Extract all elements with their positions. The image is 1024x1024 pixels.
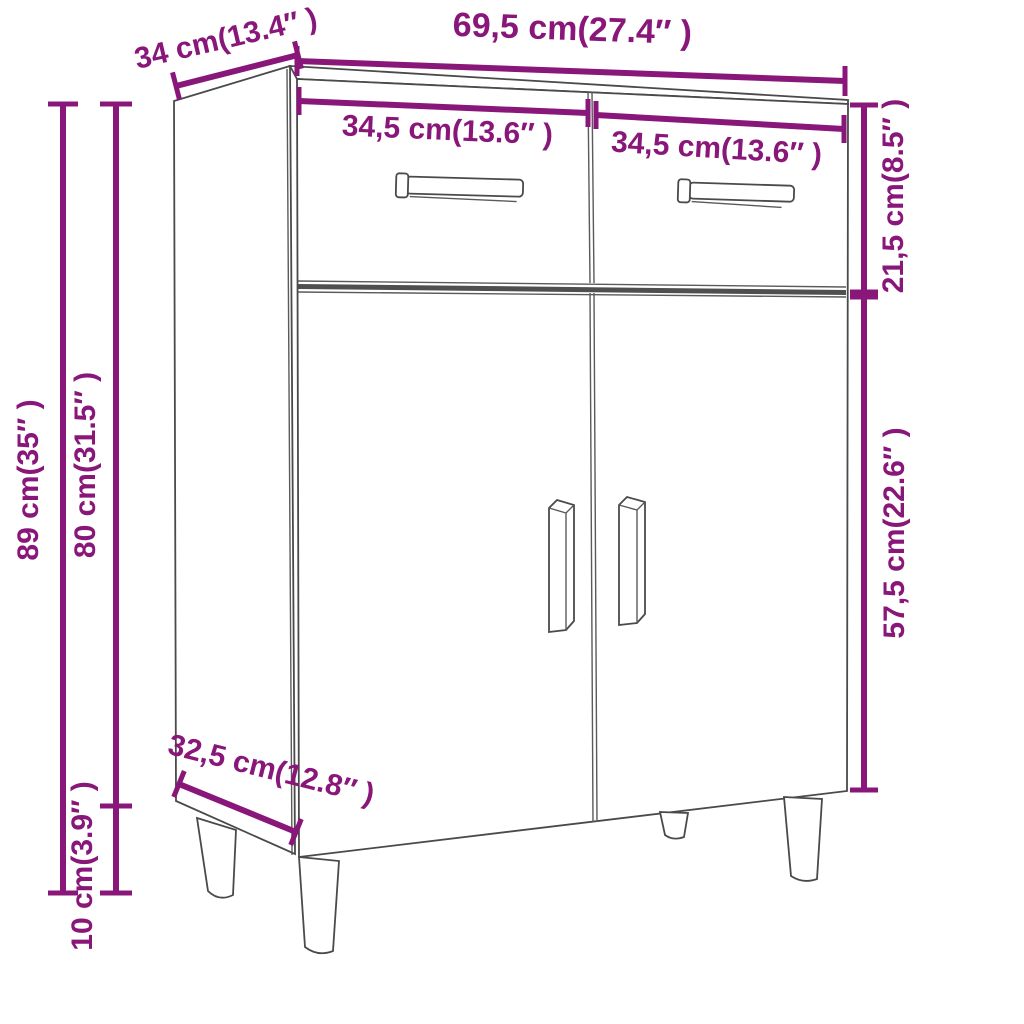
dim-total-height-label: 89 cm(35″ ) bbox=[12, 399, 45, 560]
drawer-handle-right-bar bbox=[689, 183, 794, 202]
leg-back-left bbox=[197, 818, 236, 898]
dim-width-top-label: 69,5 cm(27.4″ ) bbox=[452, 6, 692, 52]
door-handle-left-body bbox=[549, 500, 574, 632]
cabinet-drawing bbox=[174, 66, 848, 953]
drawer-handle-right-cap bbox=[678, 179, 691, 202]
leg-front-left bbox=[299, 857, 339, 953]
dim-body-height: 80 cm(31.5″ ) bbox=[69, 104, 132, 806]
dim-depth-top-label: 34 cm(13.4″ ) bbox=[131, 2, 320, 76]
dim-depth-top-tick-left bbox=[173, 72, 180, 99]
dim-leg-height-label: 10 cm(3.9″ ) bbox=[66, 781, 99, 950]
leg-front-right bbox=[784, 797, 822, 881]
dim-door-section-height: 57,5 cm(22.6″ ) bbox=[850, 297, 911, 790]
dimension-diagram-page: 69,5 cm(27.4″ ) 34 cm(13.4″ ) 34,5 cm(13… bbox=[0, 0, 1024, 1024]
dim-body-height-label: 80 cm(31.5″ ) bbox=[69, 372, 102, 558]
dim-drawer-section-height-label: 21,5 cm(8.5″ ) bbox=[877, 99, 910, 293]
door-handle-right bbox=[619, 497, 645, 625]
door-handle-right-body bbox=[619, 497, 645, 625]
door-handle-left bbox=[549, 500, 574, 632]
leg-back-right bbox=[660, 812, 688, 839]
sideboard-dimension-diagram: 69,5 cm(27.4″ ) 34 cm(13.4″ ) 34,5 cm(13… bbox=[0, 0, 1024, 1024]
dim-door-section-height-label: 57,5 cm(22.6″ ) bbox=[878, 427, 911, 638]
drawer-handle-left-cap bbox=[396, 173, 409, 197]
drawer-handle-left-bar bbox=[406, 176, 523, 196]
dim-drawer-section-height: 21,5 cm(8.5″ ) bbox=[850, 99, 910, 293]
